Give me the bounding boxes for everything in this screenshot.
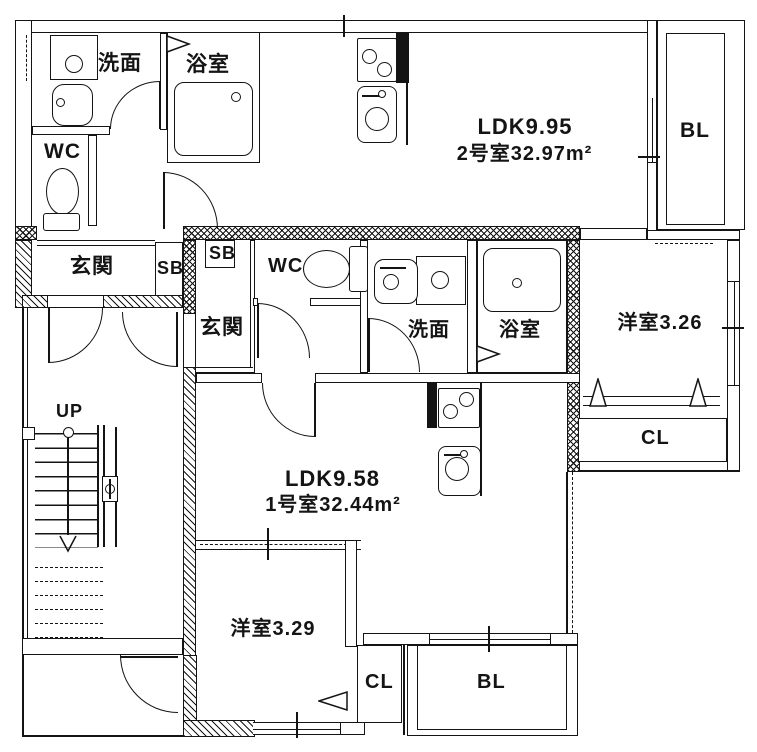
bathtub2-drain-icon: [231, 92, 241, 102]
bathtub2-icon: [174, 82, 253, 156]
party-wall-left-block: [15, 226, 37, 240]
room-label-bath-unit2: 浴室: [186, 54, 230, 75]
stairs-dashed-tread: [35, 609, 103, 610]
wall-ne-corner: [580, 228, 647, 240]
toilet1-bowl-icon: [303, 250, 350, 288]
wall-b329-bottom-east: [340, 722, 365, 735]
basin2-faucet-icon: [56, 98, 65, 107]
wall-dashed-window: [26, 35, 27, 81]
wall-hatch-corridor-b: [103, 295, 183, 308]
wall-ldk2-east-a: [647, 20, 657, 100]
door-arc-entrance2: [48, 308, 103, 363]
room-label-ldk-unit1: LDK9.58: [255, 468, 410, 490]
wall-stairwell-left-inner: [27, 308, 28, 638]
window-ldk1-south: [430, 633, 550, 645]
stove1-burner2-icon: [459, 392, 474, 407]
stairs-dashed-tread: [35, 567, 103, 568]
wall-ldk1-bottom-a: [363, 633, 430, 645]
kitchen2-partition-wall: [396, 33, 409, 83]
sliding-door-mark-icon: [588, 378, 608, 408]
wall-hall1-south-a: [196, 373, 262, 383]
room-label-wc-unit2: WC: [44, 141, 81, 162]
b326-closet-bottom-line: [578, 470, 740, 472]
wall-ldk1-bottom-b: [550, 633, 578, 645]
room-label-bath-unit1: 浴室: [499, 320, 541, 340]
window-b329-south: [253, 722, 342, 735]
stove1-burner1-icon: [443, 404, 458, 419]
wall-outer-top: [15, 20, 657, 33]
wall-b329-bottom-hatch: [183, 720, 255, 737]
closet-balcony-divider: [403, 645, 405, 735]
window-tick: [722, 327, 744, 329]
window-ldk2-east: [647, 98, 657, 164]
bathtub1-drain-icon: [512, 278, 522, 288]
door-arc-entrance1: [122, 312, 177, 367]
sliding-door-mark-icon: [318, 690, 350, 712]
toilet1-tank-icon: [349, 246, 368, 292]
window-tick: [267, 528, 269, 560]
room-label-bedroom326: 洋室3.26: [600, 313, 720, 333]
wall-wc2-right: [88, 135, 97, 226]
floor-plan-canvas: 洗面 浴室 WC 玄関 SB LDK9.95 2号室32.97m² BL SB …: [0, 0, 757, 752]
folding-door1-icon: [476, 343, 502, 365]
basin1-faucet-icon: [380, 267, 406, 269]
sink1-bowl-icon: [445, 457, 469, 481]
unit-boundary-dashed: [572, 472, 573, 638]
party-wall-vertical-mid: [183, 240, 196, 314]
room-label-ldk-unit2: LDK9.95: [450, 116, 600, 138]
wall-hall1-south-b: [315, 373, 580, 383]
stairs-dashed-tread: [35, 637, 103, 638]
room-label-washroom-unit1: 洗面: [408, 320, 450, 340]
door-leaf-wash1: [368, 318, 370, 372]
stairs-rail-a: [97, 425, 99, 547]
room-label-closet329: CL: [365, 672, 394, 692]
door-arc-wc1: [257, 303, 310, 358]
toilet2-tank-icon: [43, 213, 80, 231]
room-label-wc-unit1: WC: [268, 256, 303, 276]
wall-wash2-bottom: [32, 126, 110, 135]
wall-b326-top: [647, 230, 740, 240]
stove2-burner1-icon: [362, 49, 377, 64]
room-label-washroom-unit2: 洗面: [98, 53, 142, 74]
wall-stairwell-left: [22, 308, 24, 737]
sink2-bowl-icon: [365, 107, 389, 131]
wall-b326-east-a: [727, 240, 740, 282]
room-label-shoebox-unit1: SB: [209, 244, 236, 262]
stairs-dashed-tread: [35, 595, 103, 596]
stairs-start-dot-icon: [63, 427, 74, 438]
window-b326-east: [727, 282, 740, 385]
kitchen1-partition-wall: [427, 383, 437, 428]
washer-pan1-drain-icon: [431, 271, 449, 289]
genkan2-threshold: [37, 240, 155, 246]
room-label-shoebox-unit2: SB: [157, 259, 184, 277]
stairs-direction-line: [67, 437, 69, 535]
wall-ldk2-east-b: [647, 162, 657, 233]
sliding-door-mark-icon: [688, 378, 708, 408]
door-leaf-wc1: [257, 303, 259, 358]
stairs-dashed-tread: [35, 581, 103, 582]
door-leaf-entrance2: [48, 308, 50, 363]
room-label-bedroom329: 洋室3.29: [218, 619, 328, 639]
door-leaf-corridor2: [163, 172, 165, 229]
room-label-entrance-unit1: 玄関: [200, 317, 244, 338]
meter-stem-icon: [109, 479, 111, 499]
wall-genkan1-right: [250, 240, 255, 373]
door-arc-corridor2: [163, 172, 218, 229]
sink2-tap-icon: [378, 90, 386, 98]
sink1-tap-icon: [460, 450, 468, 458]
party-wall-horizontal: [183, 226, 580, 240]
porch-step-band: [22, 638, 183, 655]
room-label-closet326: CL: [641, 428, 670, 448]
room-label-balcony-south: BL: [477, 672, 506, 692]
room-label-balcony-unit2: BL: [680, 120, 710, 141]
basin1-bowl-icon: [383, 274, 399, 290]
b329-top-partition: [196, 540, 361, 550]
unit-boundary-line: [566, 472, 568, 638]
wall-b326-east-b: [727, 385, 740, 472]
folding-door2-icon: [166, 33, 192, 55]
wall-tick: [343, 15, 345, 37]
porch-bottom-line: [22, 735, 184, 737]
door-leaf-wash2: [159, 81, 161, 129]
b329-top-dashed: [200, 544, 357, 545]
wall-b329-right: [345, 540, 357, 647]
wall-hatch-corridor-a: [22, 295, 48, 308]
window-tick: [638, 156, 660, 158]
stove2-burner2-icon: [377, 62, 392, 77]
door-arc-porch: [120, 655, 178, 713]
kitchen2-counter-edge: [406, 83, 408, 145]
door-arc-hall1-ldk: [262, 383, 315, 437]
stairs-up-label: UP: [56, 402, 83, 420]
door-arc-wash2: [110, 81, 160, 129]
window-tick: [296, 712, 298, 738]
wall-hatch-vertical-mid: [183, 367, 196, 657]
door-opening-unit1-entrance: [183, 314, 196, 367]
door-leaf-entrance1: [176, 312, 178, 367]
door-opening-unit2-entrance: [48, 295, 103, 308]
room-label-area-unit2: 2号室32.97m²: [437, 144, 612, 164]
b326-top-dashed-line: [655, 243, 713, 244]
door-leaf-porch: [120, 656, 178, 658]
wall-outer-left: [15, 20, 32, 228]
stairs-arrow-icon: [59, 535, 77, 553]
toilet2-bowl-icon: [46, 168, 79, 215]
wall-wc1-bottom-b: [310, 298, 367, 306]
stairwell-wall-notch: [22, 427, 35, 440]
window-tick: [488, 626, 490, 652]
door-leaf-hall1-ldk: [314, 383, 316, 437]
washer-pan2-drain-icon: [65, 55, 83, 73]
stairs-dashed-tread: [35, 623, 103, 624]
room-label-entrance-unit2: 玄関: [70, 256, 114, 277]
room-label-area-unit1: 1号室32.44m²: [243, 495, 423, 515]
bathtub1-icon: [483, 248, 561, 312]
